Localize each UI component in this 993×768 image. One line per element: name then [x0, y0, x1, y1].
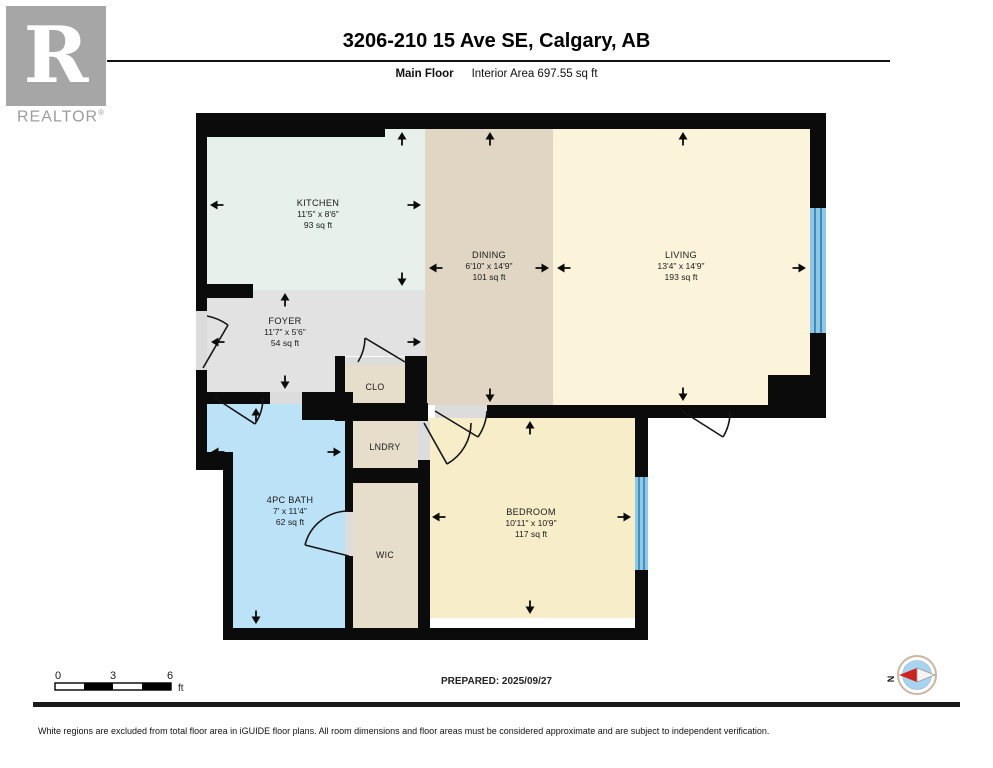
compass: N [886, 656, 936, 694]
room-kitchen-label: KITCHEN [297, 198, 339, 208]
room-kitchen-area: 93 sq ft [304, 220, 333, 230]
floor-plan-page: R REALTOR® 3206-210 15 Ave SE, Calgary, … [0, 0, 993, 768]
room-foyer-area: 54 sq ft [271, 338, 300, 348]
room-kitchen-fill-notch [385, 128, 425, 138]
room-living-dims: 13'4" x 14'9" [657, 261, 704, 271]
bath-door-sill [270, 392, 302, 404]
disclaimer-text: White regions are excluded from total fl… [38, 726, 769, 736]
room-laundry-label: LNDRY [369, 442, 400, 452]
room-bath-area: 62 sq ft [276, 517, 305, 527]
room-kitchen-dims: 11'5" x 8'6" [297, 209, 339, 219]
room-closet-label: CLO [366, 382, 385, 392]
footer-divider [33, 702, 960, 707]
room-dining-area: 101 sq ft [473, 272, 507, 282]
room-foyer-dims: 11'7" x 5'6" [264, 327, 306, 337]
room-bedroom-area: 117 sq ft [515, 529, 548, 539]
bedroom-window [635, 477, 648, 570]
room-living-label: LIVING [665, 250, 697, 260]
prepared-date: PREPARED: 2025/09/27 [0, 676, 993, 687]
wic-door-sill [345, 512, 353, 556]
room-bath-dims: 7' x 11'4" [273, 506, 307, 516]
entry-door-sill [196, 311, 207, 370]
room-living-area: 193 sq ft [665, 272, 699, 282]
closet-door-sill [345, 357, 405, 365]
living-window [810, 208, 826, 333]
room-dining-dims: 6'10" x 14'9" [465, 261, 512, 271]
laundry-door-sill [418, 421, 430, 460]
room-bath-label: 4PC BATH [267, 495, 314, 505]
floorplan-canvas: KITCHEN 11'5" x 8'6" 93 sq ft DINING 6'1… [0, 0, 993, 768]
room-bedroom-label: BEDROOM [506, 507, 556, 517]
room-bedroom-dims: 10'11" x 10'9" [505, 518, 556, 528]
room-wic-label: WIC [376, 550, 394, 560]
room-foyer-label: FOYER [268, 316, 301, 326]
room-dining-label: DINING [472, 250, 506, 260]
